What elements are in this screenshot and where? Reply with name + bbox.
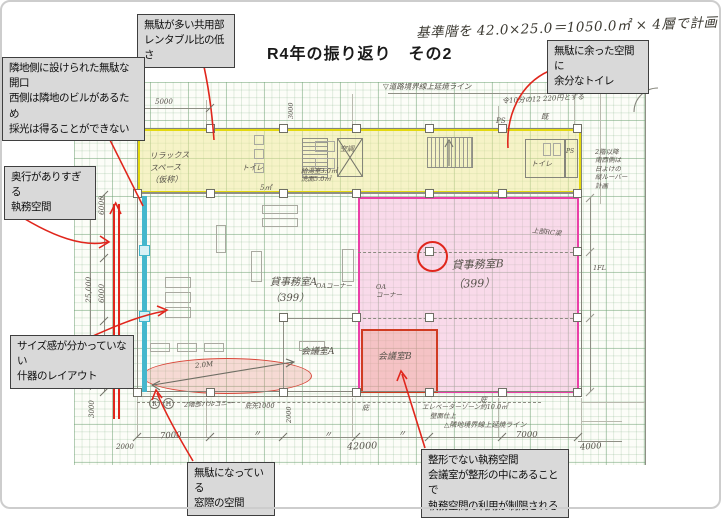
desk [262,205,298,214]
toilet-stall [254,149,264,159]
callout-opening: 隣地側に設けられた無駄な開口 西側は隣地のビルがあるため 採光は得ることができな… [2,57,145,141]
extension-line [581,398,582,441]
column-marker [352,388,361,397]
column-marker [573,247,582,256]
toilet-fixture [553,143,561,156]
meeting-a-wall [283,318,284,392]
plan-concept-note: 基準階を 42.0×25.0＝1050.0㎡ × 4層で計画 [416,11,718,42]
column-marker [498,189,507,198]
label-toilet-1: トイレ [242,164,263,173]
column-marker [352,124,361,133]
window-opening-highlight [142,196,147,392]
column-marker [425,313,434,322]
column-marker [279,388,288,397]
dim-5000: 5000 [155,98,173,107]
label-meeting-a: 会議室A [301,347,335,359]
dim-ditto: 〃 [253,429,261,439]
dimension-line-right [590,198,591,392]
dim-2000-v: 2000 [285,406,293,423]
dim-42000: 42000 [347,440,378,453]
desk [150,343,170,352]
label-ac: 空調 [340,145,354,154]
note-road-line: ▽道路境界線上延焼ライン [383,82,471,92]
stair-b [427,137,473,168]
desk [251,251,262,282]
ac-shaft [337,138,363,177]
column-marker [573,313,582,322]
beam-dashed-line [358,318,578,319]
desk [262,218,298,227]
window-mullion-node [139,311,150,322]
column-marker [279,124,288,133]
column-marker [573,124,582,133]
extension-line [352,94,353,128]
callout-shape: 整形でない執務空間 会議室が整形の中にあることで 執務空間の利用が制限される [421,449,569,518]
column-marker [206,388,215,397]
callout-furniture: サイズ感が分かっていない 什器のレイアウト [10,335,134,389]
window-mullion-node [139,245,150,256]
toilet-stall [254,135,264,145]
sketch-line [582,402,645,403]
site-boundary-line [645,84,646,465]
dim-7000-a: 7000 [160,430,182,442]
desk [177,343,197,352]
column-marker [206,124,215,133]
column-marker [425,388,434,397]
desk [216,225,226,253]
label-five-sqm: 5㎡ [260,184,271,193]
callout-toilet: 無駄に余った空間に 余分なトイレ [547,40,649,94]
label-oa-corner-1: OAコーナー [316,282,352,290]
column-marker [573,189,582,198]
column-marker [498,388,507,397]
label-kitchen: 給湯室3.0㎡ 洗面5.0㎡ [301,167,337,184]
extension-line [137,394,138,437]
label-office-b: 貸事務室B （399） [451,255,504,294]
callout-common-area: 無駄が多い共用部 レンタブル比の低さ [137,14,235,68]
column-marker [133,189,142,198]
desk [165,307,191,318]
dim-7000-b: 7000 [516,430,538,441]
meeting-a-wall [283,318,361,319]
note-arrow-label: 2.0M [195,360,214,371]
note-balcony: 2階部バルコニー [184,399,234,409]
desk [342,249,354,282]
dim-4000: 4000 [580,441,602,454]
label-toilet-2: トイレ [531,160,552,169]
note-wall-finish: 壁面仕上 [430,412,456,420]
dim-ditto: 〃 [324,430,332,440]
dim-ditto: 〃 [398,429,406,439]
label-oa-corner-2: OA コーナー [376,283,402,300]
column-marker [573,388,582,397]
grid-bubble-r: R [149,398,160,409]
sketch-line [582,421,622,422]
grid-bubble-h: H [163,398,174,409]
desk [165,277,191,288]
note-elevator: エレベーターゾーン約10.0㎡ [422,403,508,411]
dim-3000: 3000 [88,400,97,418]
column-marker [206,189,215,198]
column-marker [133,388,142,397]
label-meeting-b: 会議室B [378,352,412,364]
column-marker [279,313,288,322]
label-ps-shaft: PS [566,148,574,156]
column-marker [279,189,288,198]
dim-3000-top: 3000 [287,102,295,119]
dim-6000-a: 6000 [97,196,107,215]
column-marker [425,124,434,133]
label-office-a: 貸事務室A （399） [270,275,317,307]
extension-line [352,398,353,437]
column-marker [352,189,361,198]
dim-2000: 2000 [116,443,134,452]
note-ps-top: PS [496,117,506,126]
page-title: R4年の振り返り その2 [267,40,452,64]
note-fl: 1FL [593,264,606,272]
column-marker [425,189,434,198]
callout-depth: 奥行がありすぎる 執務空間 [4,166,96,220]
column-marker [352,313,361,322]
toilet-fixture [543,143,551,156]
note-eaves-2: 庇 [362,404,369,413]
dimension-line-bottom [137,437,578,438]
note-eaves-tip: 庇先1000 [245,402,275,410]
callout-window: 無駄になっている 窓際の空間 [187,462,275,516]
desk [204,343,224,352]
ps-shaft-box [565,139,578,178]
dim-25000: 25,000 [84,277,94,303]
note-site-line: △隣地境界線上延焼ライン [444,421,526,430]
desk [165,292,191,303]
note-existing: 既 [541,112,549,122]
column-highlight-circle [417,241,448,272]
note-louver: 2階以降 南西側は 日よけの 縦ルーバー 計画 [595,148,627,190]
kitchen-counter [315,141,335,152]
dim-6000-b: 6000 [97,284,107,303]
beam-dashed-line [358,252,578,253]
label-relax-space: リラックス スペース （仮称） [149,149,190,186]
